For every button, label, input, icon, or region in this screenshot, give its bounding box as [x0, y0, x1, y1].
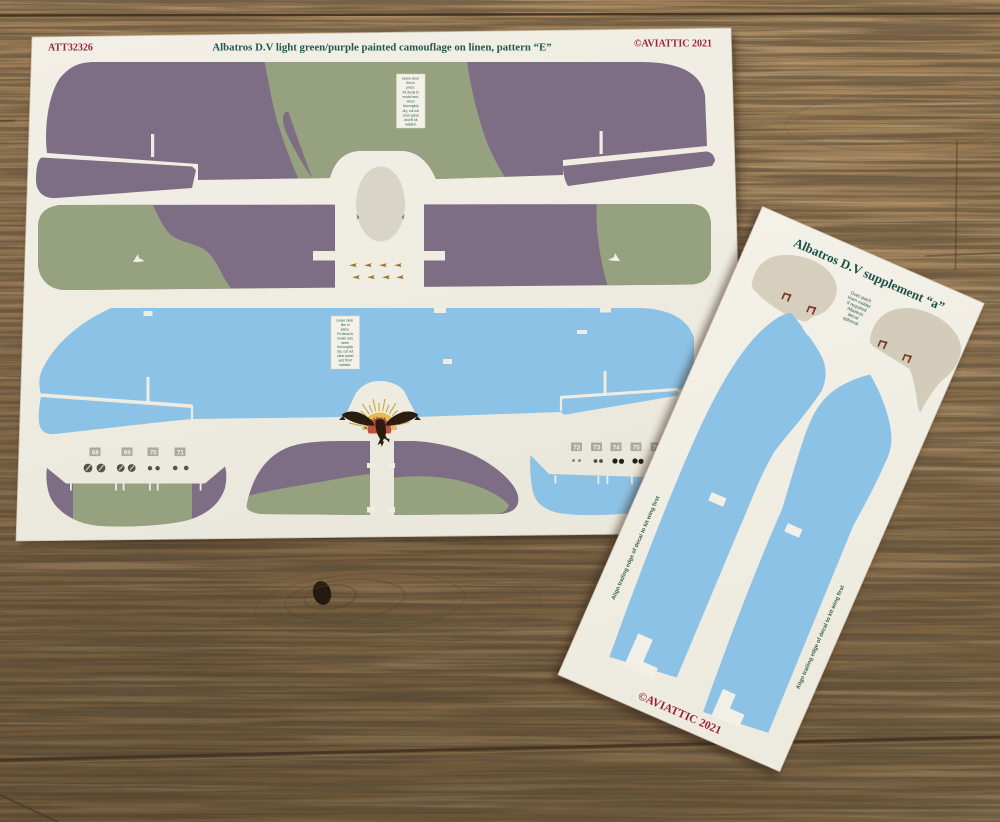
svg-text:69: 69 [124, 450, 132, 457]
svg-text:ATT32326: ATT32326 [48, 43, 93, 54]
svg-text:72: 72 [573, 445, 581, 452]
svg-text:©AVIATTIC 2021: ©AVIATTIC 2021 [634, 39, 712, 50]
svg-text:70: 70 [150, 450, 158, 457]
svg-text:74: 74 [613, 445, 621, 452]
svg-text:71: 71 [177, 450, 185, 457]
svg-text:73: 73 [593, 445, 601, 452]
svg-text:75: 75 [633, 445, 641, 452]
svg-text:68: 68 [92, 450, 100, 457]
svg-text:Albatros D.V light green/purpl: Albatros D.V light green/purple painted … [212, 42, 551, 54]
